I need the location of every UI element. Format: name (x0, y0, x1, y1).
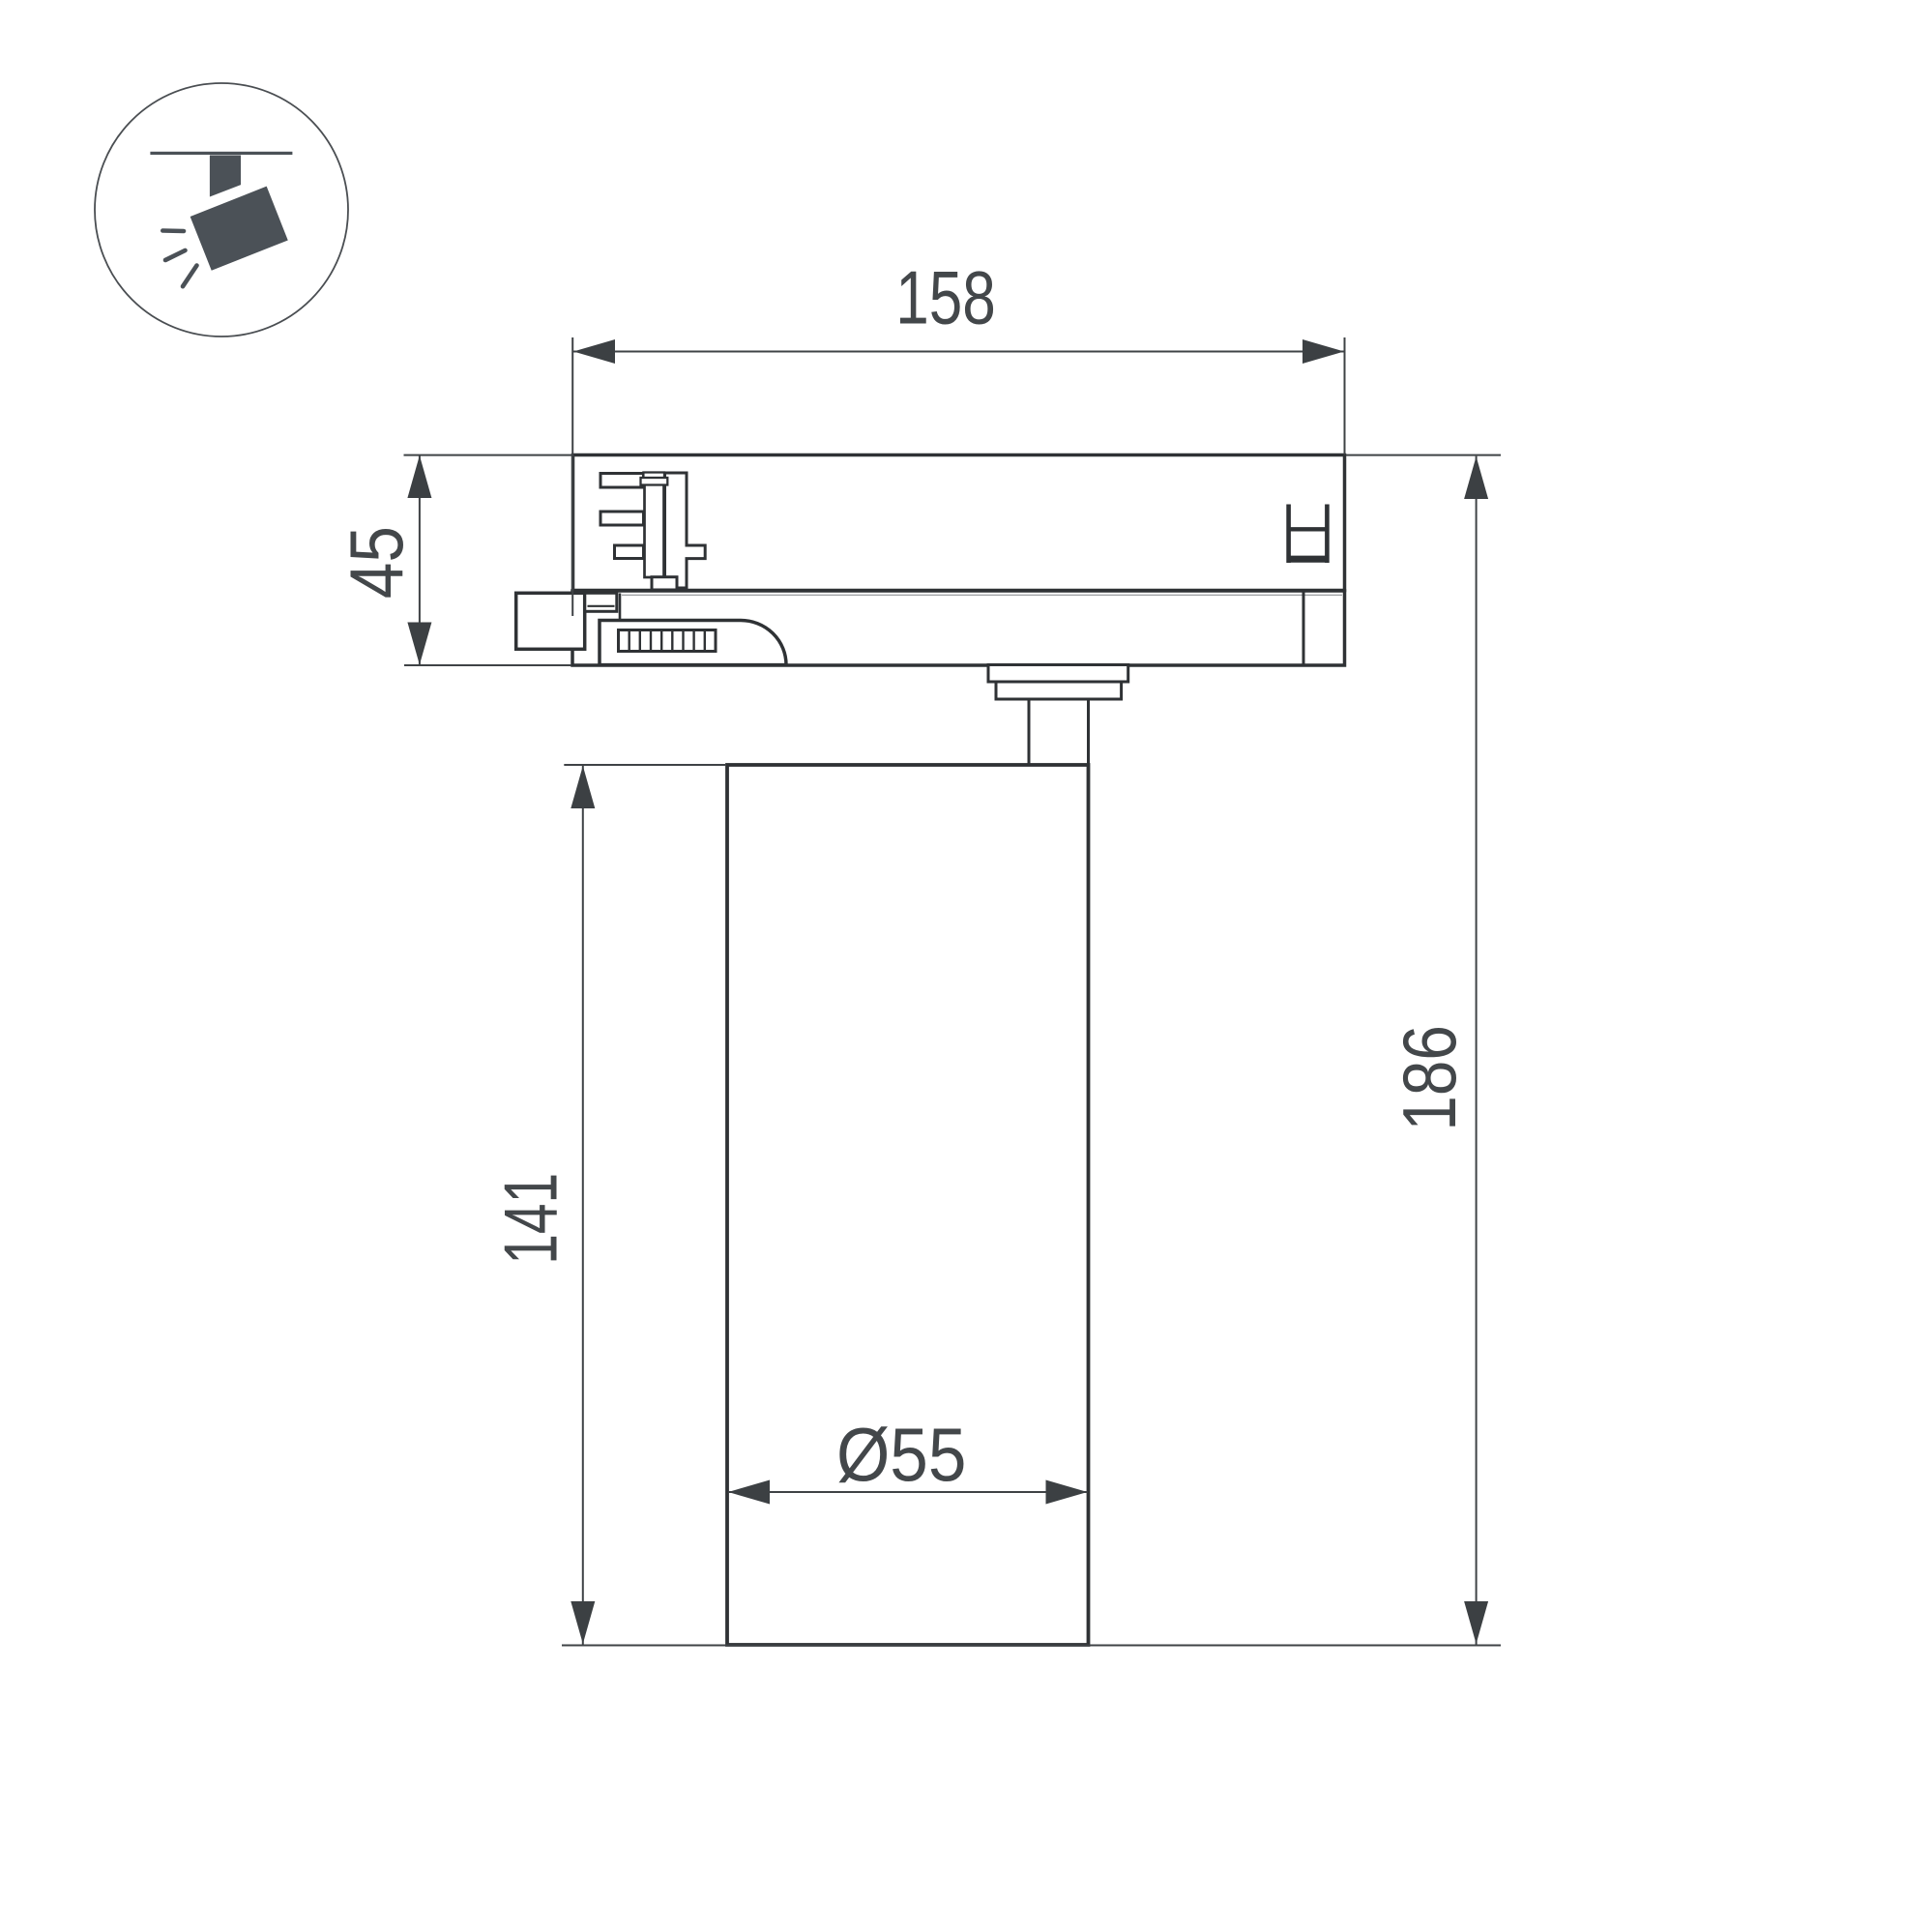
svg-text:186: 186 (1387, 1025, 1472, 1131)
svg-text:45: 45 (334, 526, 419, 599)
svg-text:Ø55: Ø55 (836, 1412, 967, 1497)
svg-text:158: 158 (895, 255, 996, 340)
svg-text:141: 141 (488, 1173, 573, 1265)
